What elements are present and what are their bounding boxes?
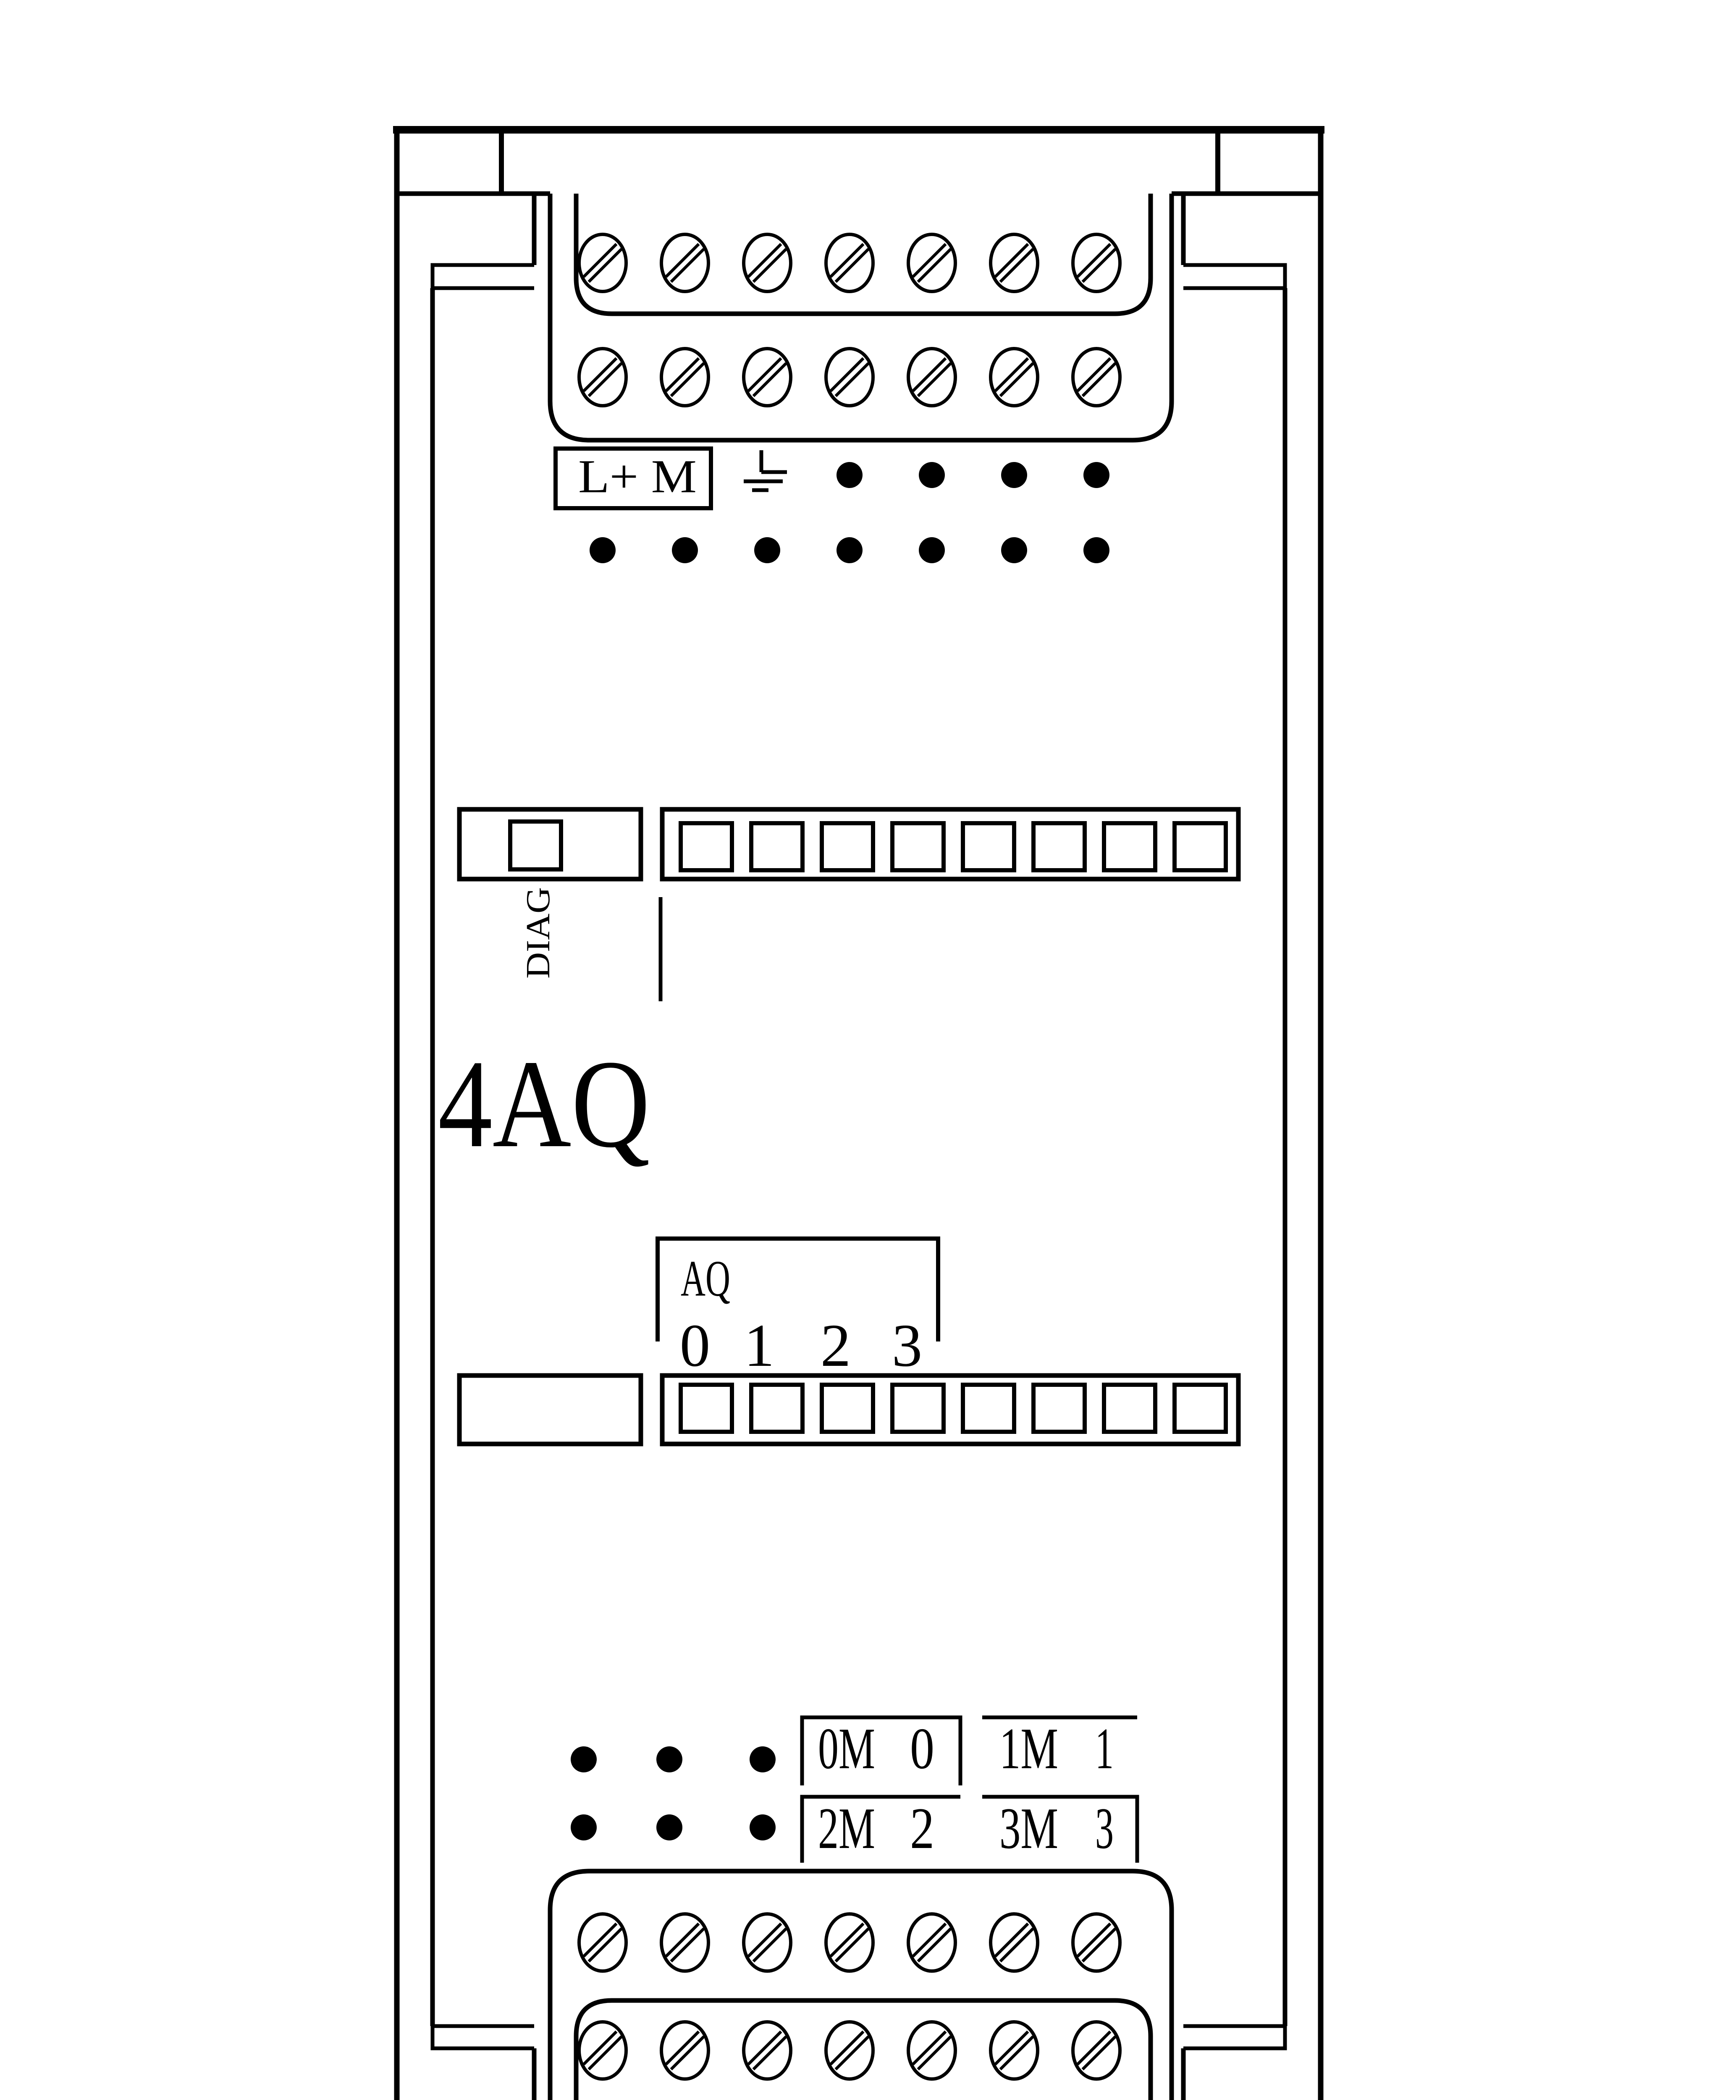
screw-terminal-icon (991, 349, 1038, 406)
led-window (1175, 1385, 1226, 1432)
led-window (1104, 1385, 1155, 1432)
aq-channel-group: AQ 0 1 2 3 (459, 1239, 1238, 1444)
wire-dot (672, 537, 698, 563)
aq-channel-3: 3 (892, 1312, 923, 1379)
wiring-diagram-canvas: L+ M DIAG 4AQ AQ 0 1 2 3 0M (0, 0, 1736, 2100)
screw-head (579, 1914, 626, 1971)
label-1: 1 (1095, 1716, 1114, 1781)
label-0M: 0M (818, 1716, 875, 1781)
power-label: L+ M (578, 451, 697, 503)
screw-head (744, 1914, 791, 1971)
screw-head (744, 234, 791, 291)
screw-terminal-icon (744, 2022, 791, 2079)
screw-terminal-icon (826, 234, 873, 291)
wire-dot (754, 537, 780, 563)
label-3: 3 (1095, 1796, 1114, 1861)
aq-group-label: AQ (681, 1250, 730, 1307)
diag-led-window (510, 822, 561, 869)
screw-head (908, 1914, 955, 1971)
screw-terminal-icon (661, 349, 708, 406)
screw-terminal-icon (1073, 349, 1120, 406)
screw-terminal-icon (661, 1914, 708, 1971)
led-window (751, 823, 802, 870)
wire-dot (590, 537, 616, 563)
led-window (751, 1385, 802, 1432)
screw-head (991, 234, 1038, 291)
led-window (1033, 823, 1085, 870)
model-label: 4AQ (438, 1034, 650, 1173)
screw-head (826, 349, 873, 406)
wire-dot (919, 462, 945, 488)
wire-dot (1001, 462, 1027, 488)
ledge-top-right (1183, 265, 1285, 288)
led-window (963, 823, 1014, 870)
bottom-terminal-block (550, 1871, 1172, 2100)
screw-terminal-icon (579, 234, 626, 291)
led-window (822, 1385, 873, 1432)
wire-dot (571, 1814, 597, 1840)
screw-head (744, 2022, 791, 2079)
screw-head (744, 349, 791, 406)
led-window (681, 1385, 732, 1432)
screw-head (661, 1914, 708, 1971)
wire-dot (1083, 462, 1109, 488)
screw-terminal-icon (579, 1914, 626, 1971)
aq-channel-1: 1 (744, 1312, 775, 1379)
screw-head (661, 2022, 708, 2079)
screw-head (579, 349, 626, 406)
led-window (1175, 823, 1226, 870)
wire-dot (1001, 537, 1027, 563)
screw-terminal-icon (908, 349, 955, 406)
screw-terminal-icon (908, 1914, 955, 1971)
diag-label: DIAG (520, 887, 557, 979)
wire-dot (837, 537, 863, 563)
wire-connection-dots (571, 462, 1109, 1840)
wire-dot (837, 462, 863, 488)
wire-dot (571, 1746, 597, 1772)
screw-terminal-icon (991, 1914, 1038, 1971)
led-windows-top (681, 823, 1226, 870)
screw-head (1073, 2022, 1120, 2079)
aq-channel-2: 2 (821, 1312, 851, 1379)
label-2M: 2M (818, 1796, 875, 1861)
screw-terminal-icon (991, 234, 1038, 291)
blank-led-box (459, 1375, 641, 1444)
wire-dot (656, 1746, 682, 1772)
label-0: 0 (910, 1716, 934, 1781)
led-window (892, 823, 944, 870)
screw-head (579, 2022, 626, 2079)
screw-terminal-icon (991, 2022, 1038, 2079)
screw-terminal-icon (908, 234, 955, 291)
screw-terminal-icon (579, 349, 626, 406)
screw-head (991, 349, 1038, 406)
screw-head (661, 234, 708, 291)
aq-channel-0: 0 (680, 1312, 711, 1379)
screw-head (1073, 349, 1120, 406)
screw-terminals-top (579, 234, 1120, 406)
screw-terminal-icon (744, 349, 791, 406)
wire-dot (1083, 537, 1109, 563)
screw-head (826, 234, 873, 291)
screw-terminal-icon (661, 234, 708, 291)
screw-head (826, 2022, 873, 2079)
ledge-bottom-left (433, 2026, 534, 2048)
top-terminal-block (550, 194, 1172, 440)
screw-head (908, 234, 955, 291)
screw-terminal-icon (826, 2022, 873, 2079)
led-window (892, 1385, 944, 1432)
screw-head (579, 234, 626, 291)
screw-terminal-icon (744, 234, 791, 291)
label-3M: 3M (999, 1796, 1058, 1861)
label-1M: 1M (999, 1716, 1058, 1781)
screw-terminal-icon (744, 1914, 791, 1971)
screw-head (991, 1914, 1038, 1971)
led-window (963, 1385, 1014, 1432)
screw-terminal-icon (826, 1914, 873, 1971)
diag-led-group: DIAG (459, 809, 1238, 1001)
screw-terminal-icon (908, 2022, 955, 2079)
screw-terminal-icon (1073, 1914, 1120, 1971)
ledge-top-left (433, 265, 534, 288)
screw-terminal-icon (1073, 234, 1120, 291)
led-window (1104, 823, 1155, 870)
screw-head (1073, 1914, 1120, 1971)
screw-head (661, 349, 708, 406)
label-2: 2 (910, 1796, 934, 1861)
screw-terminal-icon (1073, 2022, 1120, 2079)
screw-head (1073, 234, 1120, 291)
led-window (822, 823, 873, 870)
wire-dot (919, 537, 945, 563)
ledge-bottom-right (1183, 2026, 1285, 2048)
plc-4aq-wiring-diagram-page: L+ M DIAG 4AQ AQ 0 1 2 3 0M (0, 0, 1736, 2100)
led-window (681, 823, 732, 870)
wire-dot (750, 1746, 776, 1772)
wire-dot (750, 1814, 776, 1840)
screw-head (908, 2022, 955, 2079)
screw-head (908, 349, 955, 406)
screw-terminal-icon (826, 349, 873, 406)
output-terminal-labels: 0M 0 1M 1 2M 2 3M 3 (802, 1716, 1137, 1863)
screw-head (826, 1914, 873, 1971)
screw-terminal-icon (661, 2022, 708, 2079)
screw-head (991, 2022, 1038, 2079)
led-window (1033, 1385, 1085, 1432)
earth-ground-icon (744, 450, 787, 490)
screw-terminal-icon (579, 2022, 626, 2079)
wire-dot (656, 1814, 682, 1840)
screw-terminals-bottom (579, 1914, 1120, 2079)
led-windows-bottom (681, 1385, 1226, 1432)
